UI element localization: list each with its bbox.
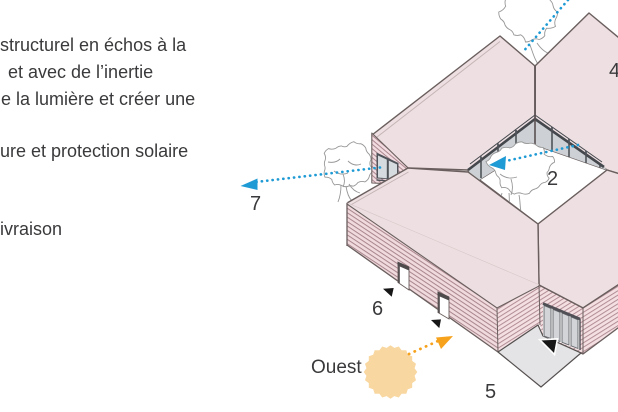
svg-text:6: 6 xyxy=(372,298,383,320)
svg-text:e la lumière et créer une: e la lumière et créer une xyxy=(1,89,195,109)
svg-text:structurel en échos à la: structurel en échos à la xyxy=(0,35,187,55)
svg-text:7: 7 xyxy=(250,193,261,215)
svg-text:4: 4 xyxy=(609,60,618,82)
svg-text:5: 5 xyxy=(485,381,496,403)
svg-text:et avec de l’inertie: et avec de l’inertie xyxy=(8,62,153,82)
svg-text:ure et protection solaire: ure et protection solaire xyxy=(0,141,188,161)
svg-text:Ouest: Ouest xyxy=(311,357,362,378)
svg-text:2: 2 xyxy=(547,168,558,190)
svg-text:ivraison: ivraison xyxy=(0,219,62,239)
